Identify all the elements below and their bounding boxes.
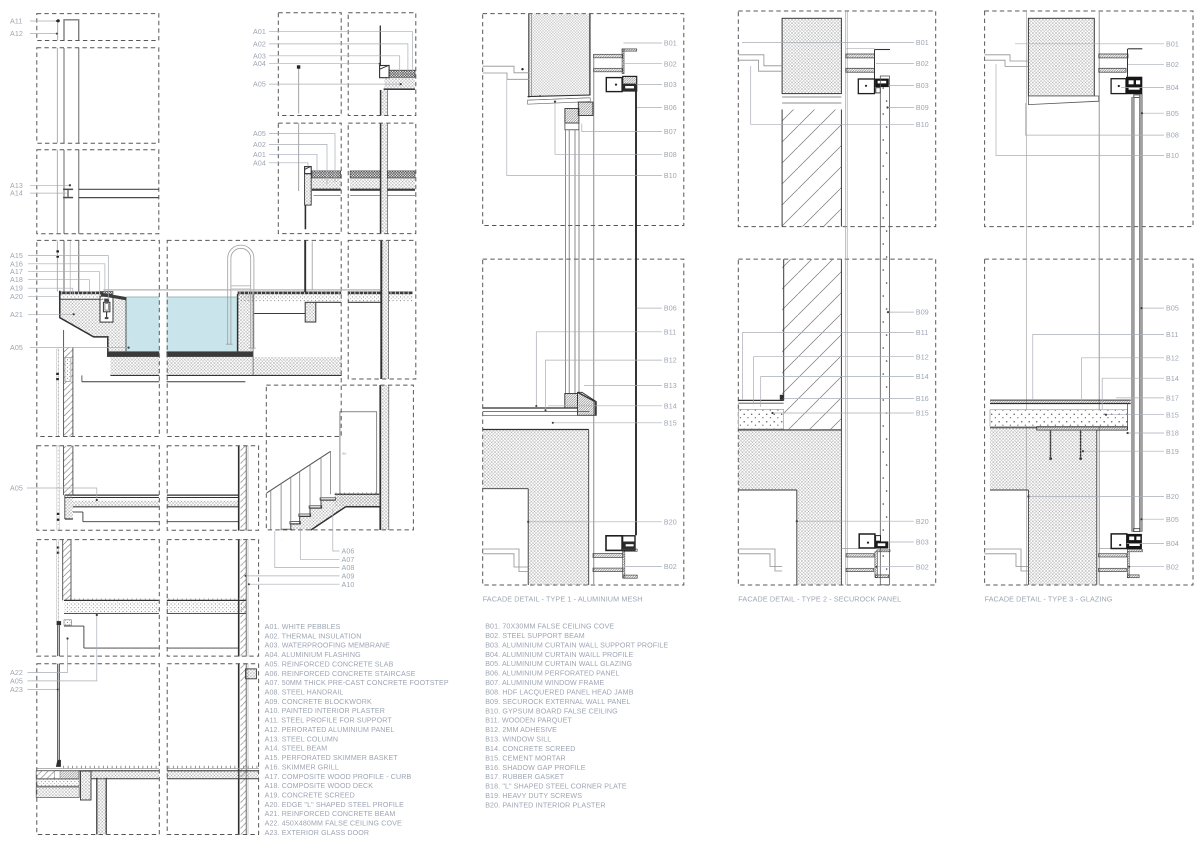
svg-text:B05: B05: [1166, 516, 1179, 524]
svg-text:A17. COMPOSITE WOOD PROFILE -: A17. COMPOSITE WOOD PROFILE - CURB: [265, 773, 412, 781]
svg-text:B05: B05: [1166, 305, 1179, 313]
svg-text:B09: B09: [916, 309, 929, 317]
svg-text:A18. COMPOSITE WOOD DECK: A18. COMPOSITE WOOD DECK: [265, 782, 374, 790]
svg-text:A08. STEEL HANDRAIL: A08. STEEL HANDRAIL: [265, 689, 344, 697]
svg-text:A03. WATERPROOFING MEMBRANE: A03. WATERPROOFING MEMBRANE: [265, 642, 391, 650]
svg-text:A11. STEEL PROFILE FOR SUPPOR: A11. STEEL PROFILE FOR SUPPORT: [265, 717, 393, 725]
svg-text:A01: A01: [253, 28, 266, 36]
svg-text:B13. WINDOW SILL: B13. WINDOW SILL: [485, 736, 551, 744]
svg-text:A15. PERFORATED SKIMMER BASKET: A15. PERFORATED SKIMMER BASKET: [265, 754, 399, 762]
svg-text:A04. ALUMINIUM FLASHING: A04. ALUMINIUM FLASHING: [265, 651, 361, 659]
svg-text:B08: B08: [664, 151, 677, 159]
svg-text:A01: A01: [253, 151, 266, 159]
svg-text:B03: B03: [916, 539, 929, 547]
svg-text:B10. GYPSUM BOARD FALSE CEILIN: B10. GYPSUM BOARD FALSE CEILING: [485, 707, 618, 715]
svg-text:B12. 2MM ADHESIVE: B12. 2MM ADHESIVE: [485, 726, 557, 734]
svg-text:B19. HEAVY DUTY SCREWS: B19. HEAVY DUTY SCREWS: [485, 792, 582, 800]
svg-text:A17: A17: [10, 268, 23, 276]
svg-text:B08. HDF LACQUERED PANEL HEAD: B08. HDF LACQUERED PANEL HEAD JAMB: [485, 688, 634, 696]
svg-text:B01. 70X30MM FALSE CEILING COV: B01. 70X30MM FALSE CEILING COVE: [485, 623, 614, 631]
svg-text:B06: B06: [664, 104, 677, 112]
svg-text:B14. CONCRETE SCREED: B14. CONCRETE SCREED: [485, 745, 575, 753]
svg-text:A05: A05: [10, 485, 23, 493]
svg-text:B01: B01: [916, 39, 929, 47]
svg-text:B14: B14: [1166, 375, 1179, 383]
svg-text:B09: B09: [916, 104, 929, 112]
svg-text:B05. ALUMINIUM CURTAIN WALL GL: B05. ALUMINIUM CURTAIN WALL GLAZING: [485, 660, 632, 668]
svg-text:A09. CONCRETE BLOCKWORK: A09. CONCRETE BLOCKWORK: [265, 698, 372, 706]
svg-text:A05: A05: [10, 677, 23, 685]
svg-text:A21. REINFORCED CONCRETE BEAM: A21. REINFORCED CONCRETE BEAM: [265, 810, 396, 818]
svg-text:B07. ALUMINIUM WINDOW FRAME: B07. ALUMINIUM WINDOW FRAME: [485, 679, 604, 687]
svg-text:A19: A19: [10, 285, 23, 293]
svg-text:B05: B05: [1166, 110, 1179, 118]
svg-text:A23: A23: [10, 686, 23, 694]
svg-text:B02: B02: [916, 60, 929, 68]
svg-text:B09. SECUROCK EXTERNAL WALL PA: B09. SECUROCK EXTERNAL WALL PANEL: [485, 698, 630, 706]
svg-text:A05: A05: [10, 344, 23, 352]
svg-text:A10. PAINTED INTERIOR PLASTER: A10. PAINTED INTERIOR PLASTER: [265, 707, 385, 715]
svg-text:B19: B19: [1166, 448, 1179, 456]
svg-text:B06. ALUMINIUM PERFORATED PANE: B06. ALUMINIUM PERFORATED PANEL: [485, 670, 619, 678]
svg-text:A13. STEEL COLUMN: A13. STEEL COLUMN: [265, 735, 339, 743]
svg-text:A14. STEEL BEAM: A14. STEEL BEAM: [265, 745, 328, 753]
svg-text:B13: B13: [664, 382, 677, 390]
svg-text:A23. EXTERIOR GLASS DOOR: A23. EXTERIOR GLASS DOOR: [265, 829, 370, 837]
svg-text:A06. REINFORCED CONCRETE STAIR: A06. REINFORCED CONCRETE STAIRCASE: [265, 670, 416, 678]
svg-text:B03: B03: [664, 81, 677, 89]
svg-text:A07: A07: [342, 556, 355, 564]
svg-text:B01: B01: [664, 40, 677, 48]
svg-text:A21: A21: [10, 311, 23, 319]
svg-text:B20: B20: [1166, 493, 1179, 501]
svg-text:B18: B18: [1166, 430, 1179, 438]
svg-text:A19. CONCRETE SCREED: A19. CONCRETE SCREED: [265, 791, 355, 799]
svg-text:A12. PERORATED ALUMINIUM PANE: A12. PERORATED ALUMINIUM PANEL: [265, 726, 395, 734]
svg-text:A09: A09: [342, 573, 355, 581]
svg-text:A07. 50MM THICK PRE-CAST CONCR: A07. 50MM THICK PRE-CAST CONCRETE FOOTST…: [265, 679, 449, 687]
svg-text:B15: B15: [1166, 411, 1179, 419]
svg-text:A05: A05: [253, 81, 266, 89]
svg-text:B15. CEMENT MORTAR: B15. CEMENT MORTAR: [485, 754, 566, 762]
svg-text:B12: B12: [916, 353, 929, 361]
svg-text:A06: A06: [342, 548, 355, 556]
svg-text:A02: A02: [253, 40, 266, 48]
svg-text:A05. REINFORCED CONCRETE SLAB: A05. REINFORCED CONCRETE SLAB: [265, 660, 394, 668]
svg-text:B14: B14: [664, 402, 677, 410]
svg-text:B06: B06: [664, 305, 677, 313]
svg-text:B02: B02: [1166, 61, 1179, 69]
svg-text:B02: B02: [664, 563, 677, 571]
svg-text:B20: B20: [916, 518, 929, 526]
svg-text:A16: A16: [10, 260, 23, 268]
svg-text:B12: B12: [1166, 354, 1179, 362]
svg-text:A02. THERMAL INSULATION: A02. THERMAL INSULATION: [265, 632, 362, 640]
svg-text:A15: A15: [10, 252, 23, 260]
svg-text:B11: B11: [664, 328, 676, 336]
svg-text:A10: A10: [342, 581, 355, 589]
svg-text:A08: A08: [342, 564, 355, 572]
svg-text:FACADE DETAIL - TYPE 2 - SECUR: FACADE DETAIL - TYPE 2 - SECUROCK PANEL: [738, 595, 901, 604]
svg-text:B04: B04: [1166, 84, 1179, 92]
svg-text:B10: B10: [1166, 152, 1179, 160]
svg-text:B04: B04: [1166, 540, 1179, 548]
svg-text:B18. "L" SHAPED STEEL CORNER P: B18. "L" SHAPED STEEL CORNER PLATE: [485, 783, 627, 791]
svg-text:B10: B10: [664, 172, 677, 180]
svg-text:B14: B14: [916, 373, 929, 381]
svg-text:B16: B16: [916, 395, 929, 403]
svg-text:A22. 450X480MM FALSE CEILING C: A22. 450X480MM FALSE CEILING COVE: [265, 820, 402, 828]
svg-text:B02: B02: [664, 60, 677, 68]
svg-text:A11: A11: [10, 18, 22, 26]
svg-text:A14: A14: [10, 190, 23, 198]
svg-text:B07: B07: [664, 128, 677, 136]
svg-text:B20: B20: [664, 518, 677, 526]
svg-text:A01. WHITE PEBBLES: A01. WHITE PEBBLES: [265, 623, 341, 631]
svg-text:B15: B15: [664, 419, 677, 427]
svg-text:B01: B01: [1166, 40, 1179, 48]
svg-text:A04: A04: [253, 159, 266, 167]
svg-text:A16. SKIMMER GRILL: A16. SKIMMER GRILL: [265, 763, 339, 771]
svg-text:B02: B02: [1166, 563, 1179, 571]
svg-text:B11: B11: [916, 329, 928, 337]
svg-text:B02: B02: [916, 563, 929, 571]
svg-text:FACADE DETAIL - TYPE 1 - ALUMI: FACADE DETAIL - TYPE 1 - ALUMINIUM MESH: [483, 595, 643, 604]
svg-text:B03: B03: [916, 82, 929, 90]
svg-text:B15: B15: [916, 410, 929, 418]
svg-text:A02: A02: [253, 141, 266, 149]
svg-text:B17: B17: [1166, 395, 1179, 403]
svg-text:FACADE DETAIL - TYPE 3 - GLAZI: FACADE DETAIL - TYPE 3 - GLAZING: [985, 595, 1113, 604]
svg-text:B11: B11: [1166, 331, 1178, 339]
svg-text:A03: A03: [253, 52, 266, 60]
svg-text:B02. STEEL SUPPORT BEAM: B02. STEEL SUPPORT BEAM: [485, 632, 585, 640]
svg-text:B+: B+: [343, 452, 347, 456]
svg-text:B08: B08: [1166, 132, 1179, 140]
svg-text:B03. ALUMINIUM CURTAIN WALL SU: B03. ALUMINIUM CURTAIN WALL SUPPORT PROF…: [485, 641, 668, 649]
svg-text:A12: A12: [10, 30, 23, 38]
svg-text:B12: B12: [664, 357, 677, 365]
svg-text:A22: A22: [10, 669, 23, 677]
svg-text:B04. ALUMINIUM CURTAIN WAILL P: B04. ALUMINIUM CURTAIN WAILL PROFILE: [485, 651, 633, 659]
svg-text:A04: A04: [253, 60, 266, 68]
svg-text:A20. EDGE "L" SHAPED STEEL PRO: A20. EDGE "L" SHAPED STEEL PROFILE: [265, 801, 404, 809]
svg-text:B17. RUBBER GASKET: B17. RUBBER GASKET: [485, 773, 565, 781]
svg-text:B16. SHADOW GAP PROFILE: B16. SHADOW GAP PROFILE: [485, 764, 586, 772]
svg-text:B11. WOODEN PARQUET: B11. WOODEN PARQUET: [485, 717, 572, 725]
svg-text:A20: A20: [10, 293, 23, 301]
svg-text:B20. PAINTED INTERIOR PLASTER: B20. PAINTED INTERIOR PLASTER: [485, 801, 605, 809]
svg-text:A05: A05: [253, 130, 266, 138]
svg-text:B10: B10: [916, 121, 929, 129]
svg-text:A18: A18: [10, 276, 23, 284]
